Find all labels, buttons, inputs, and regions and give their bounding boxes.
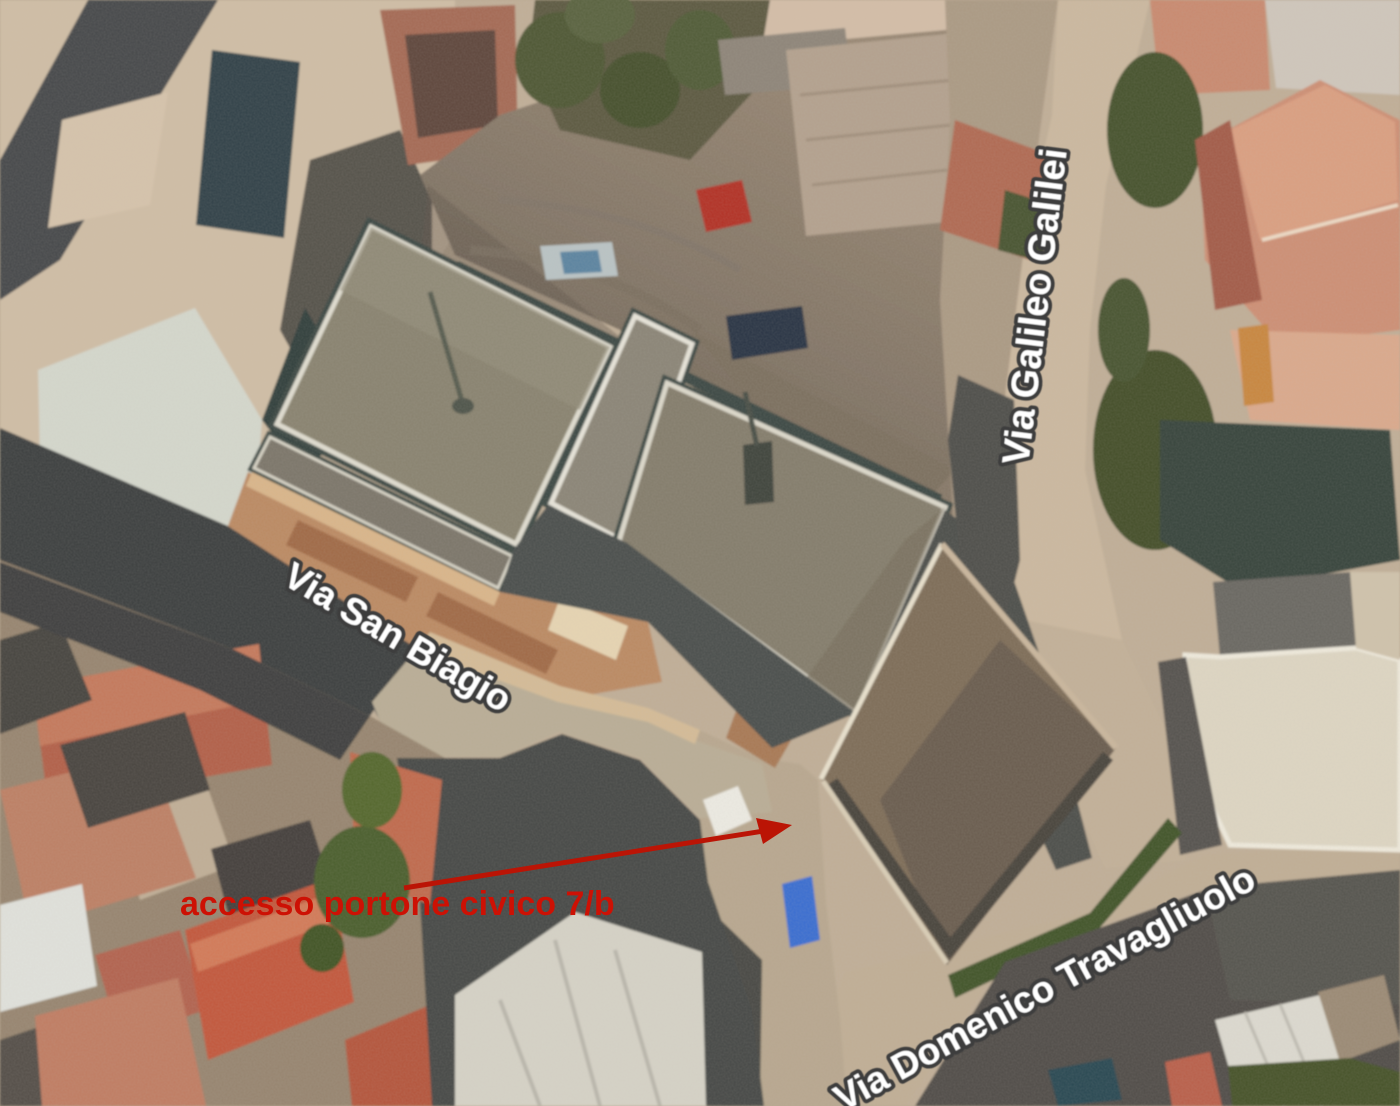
- svg-text:accesso portone civico 7/b: accesso portone civico 7/b: [180, 885, 615, 923]
